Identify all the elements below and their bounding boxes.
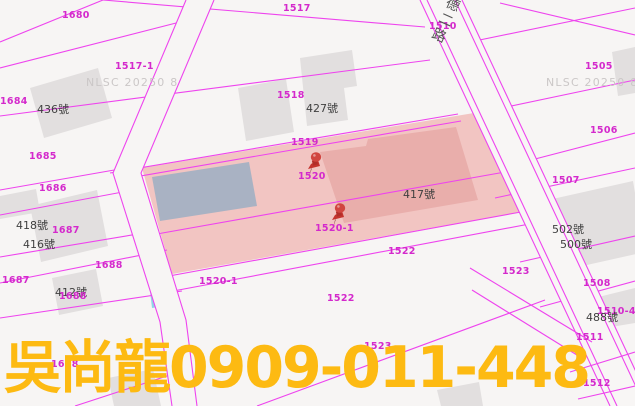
house-label-500: 500號 <box>560 236 592 252</box>
parcel-label-1688-b: 1688 <box>59 291 87 302</box>
parcel-label-1519: 1519 <box>291 137 319 148</box>
parcel-label-1686: 1686 <box>39 183 67 194</box>
parcel-label-1680: 1680 <box>62 10 90 21</box>
house-label-488: 488號 <box>586 309 618 325</box>
cadastral-map-view: 1680 1517 1517-1 NLSC 20250 8 1684 436號 … <box>0 0 635 406</box>
house-label-502: 502號 <box>552 221 584 237</box>
parcel-label-1506: 1506 <box>590 125 618 136</box>
parcel-label-1688-a: 1688 <box>95 260 123 271</box>
parcel-label-1685: 1685 <box>29 151 57 162</box>
house-label-417: 417號 <box>403 186 435 202</box>
parcel-label-1523-a: 1523 <box>502 266 530 277</box>
parcel-label-1505: 1505 <box>585 61 613 72</box>
building-1518 <box>238 79 294 141</box>
parcel-label-1508: 1508 <box>583 278 611 289</box>
parcel-label-1684: 1684 <box>0 96 28 107</box>
parcel-label-1507: 1507 <box>552 175 580 186</box>
parcel-label-1522-b: 1522 <box>327 293 355 304</box>
parcel-label-1517-1: 1517-1 <box>115 61 154 72</box>
house-label-436: 436號 <box>37 101 69 117</box>
nlsc-watermark-right: NLSC 20250 8 <box>546 76 635 89</box>
parcel-label-1687-b: 1687 <box>2 275 30 286</box>
parcel-label-1522-a: 1522 <box>388 246 416 257</box>
agent-contact-overlay: 吳尚龍0909-011-448 <box>4 322 589 404</box>
parcel-label-1517: 1517 <box>283 3 311 14</box>
parcel-label-1520: 1520 <box>298 171 326 182</box>
house-label-427: 427號 <box>306 100 338 116</box>
house-label-416: 416號 <box>23 236 55 252</box>
house-label-418: 418號 <box>16 217 48 233</box>
parcel-label-1687-a: 1687 <box>52 225 80 236</box>
parcel-label-1520-1-b: 1520-1 <box>199 276 238 287</box>
nlsc-watermark-left: NLSC 20250 8 <box>86 76 178 89</box>
parcel-label-1520-1-a: 1520-1 <box>315 223 354 234</box>
parcel-label-1518: 1518 <box>277 90 305 101</box>
